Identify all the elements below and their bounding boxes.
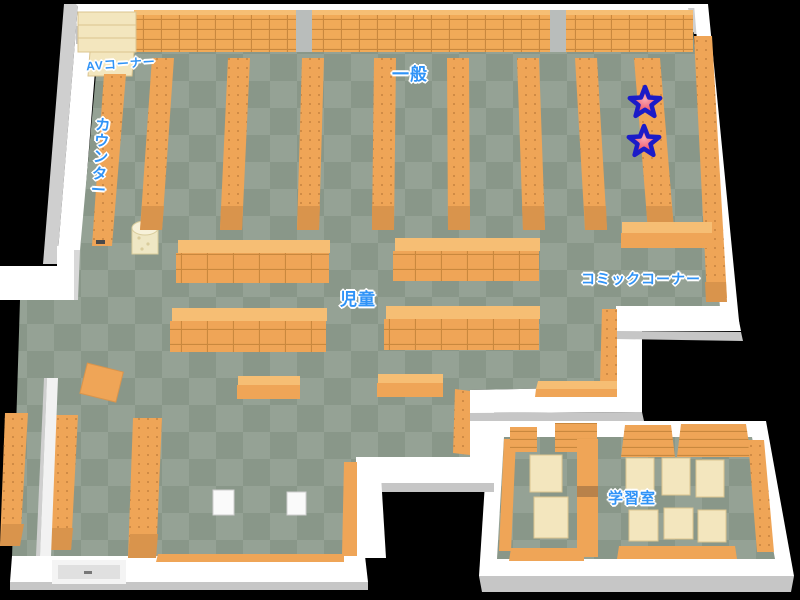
children-shelf — [170, 308, 327, 352]
children-shelf — [176, 240, 330, 283]
study-top-shelf-small-1 — [510, 427, 537, 452]
partition-doorway — [577, 486, 598, 497]
children-low-table — [237, 376, 300, 399]
study-partition-shelf — [577, 439, 598, 557]
study-table — [534, 497, 568, 538]
study-table — [698, 510, 726, 542]
entrance-door — [52, 560, 126, 584]
label-children: 児童 — [340, 285, 376, 310]
white-kiosk — [287, 492, 306, 515]
study-bottom-shelf-left — [509, 548, 584, 561]
study-table — [696, 460, 724, 497]
library-floor-map — [0, 0, 800, 600]
door-handle — [84, 571, 92, 574]
label-comic-corner: コミックコーナー — [581, 269, 701, 289]
study-table — [662, 458, 690, 495]
comic-shelf — [621, 222, 713, 248]
top-wall-shelves — [134, 10, 693, 52]
wall-pillar — [296, 10, 312, 52]
study-table — [664, 508, 693, 539]
study-table — [629, 510, 658, 541]
aisle-shelf — [447, 58, 470, 230]
lower-right-wall-shelf — [342, 462, 357, 556]
lower-bottom-wall-shelf — [156, 554, 344, 562]
study-top-shelf-bank-2 — [677, 424, 751, 457]
study-bottom-shelf-right — [617, 546, 737, 559]
library-floor-map-stage: AVコーナー 一般 カウンター 児童 コミックコーナー 学習室 — [0, 0, 800, 600]
label-study-room: 学習室 — [608, 487, 656, 508]
aisle-shelf — [128, 418, 162, 558]
children-shelf — [393, 238, 540, 281]
comic-bottom-shelf — [536, 381, 617, 389]
children-shelf — [384, 306, 540, 350]
children-low-table — [377, 374, 443, 397]
comic-step-wall-horizontal — [616, 306, 741, 331]
white-kiosk — [213, 490, 234, 515]
study-table — [530, 455, 562, 492]
label-general: 一般 — [392, 60, 428, 85]
study-top-shelf-bank-1 — [621, 425, 675, 457]
counter-end-mark — [96, 240, 105, 244]
wall-pillar — [550, 10, 566, 52]
